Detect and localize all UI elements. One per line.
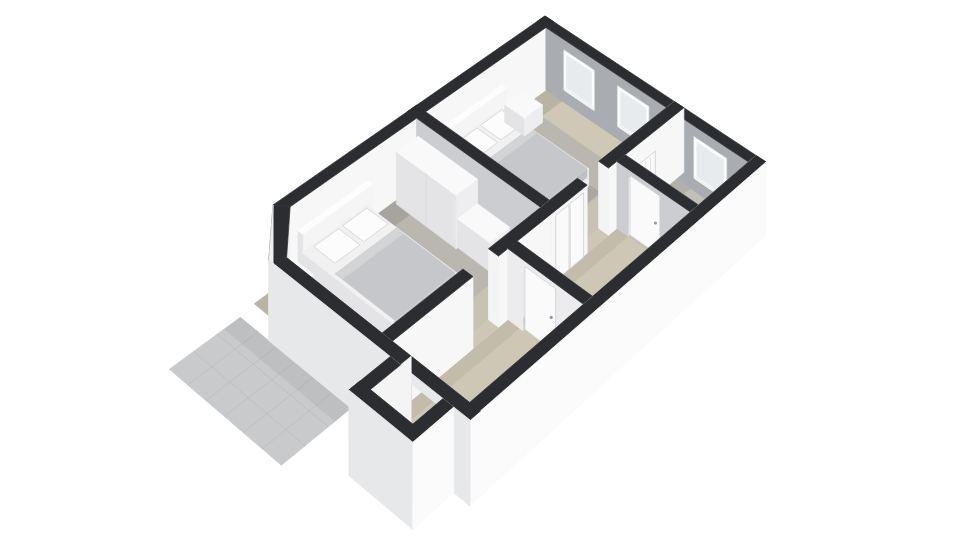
floorplan-3d-view: [0, 0, 960, 540]
page: [0, 0, 960, 540]
